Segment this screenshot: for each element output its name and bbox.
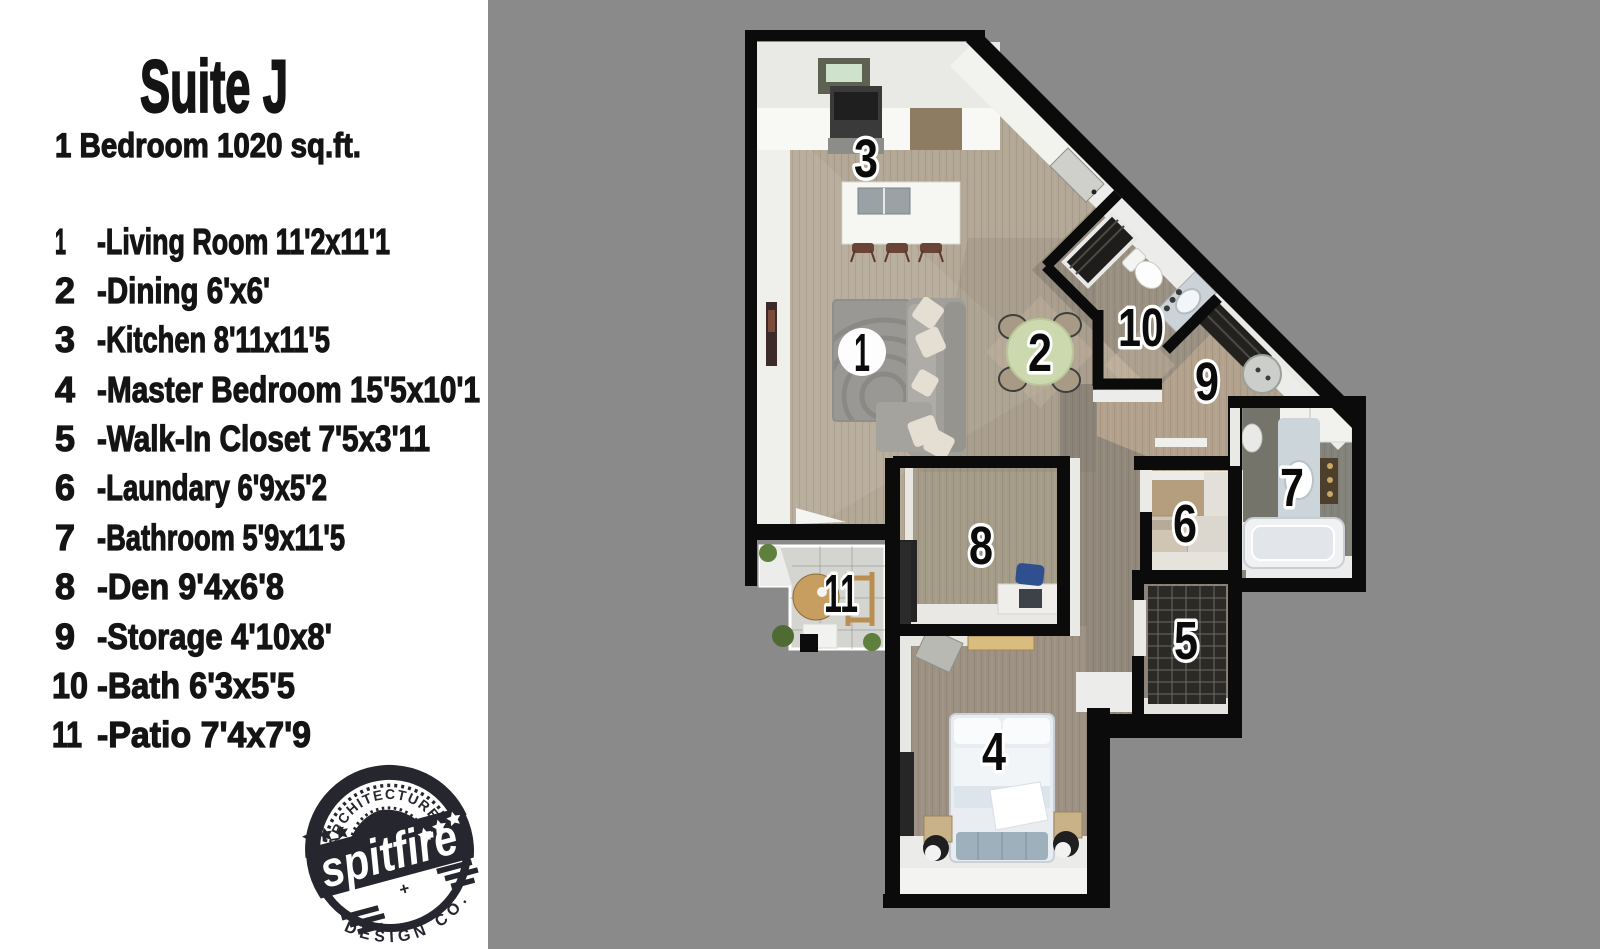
svg-text:3: 3 — [55, 319, 75, 360]
svg-text:-Dining 6'x6': -Dining 6'x6' — [97, 270, 270, 311]
svg-text:6: 6 — [1173, 494, 1197, 554]
svg-text:5: 5 — [55, 418, 75, 459]
svg-text:-Kitchen 8'11x11'5: -Kitchen 8'11x11'5 — [97, 319, 330, 360]
svg-text:-Laundary 6'9x5'2: -Laundary 6'9x5'2 — [97, 467, 327, 508]
svg-text:8: 8 — [969, 516, 993, 576]
svg-text:-Living Room 11'2x11'1: -Living Room 11'2x11'1 — [97, 221, 390, 262]
svg-text:2: 2 — [1028, 323, 1052, 383]
svg-text:10: 10 — [52, 665, 88, 706]
svg-text:Suite J: Suite J — [140, 45, 288, 128]
svg-text:1 Bedroom 1020 sq.ft.: 1 Bedroom 1020 sq.ft. — [55, 127, 361, 165]
svg-text:1: 1 — [854, 323, 870, 383]
svg-text:7: 7 — [55, 517, 75, 558]
svg-text:9: 9 — [1195, 352, 1219, 412]
svg-text:-Storage 4'10x8': -Storage 4'10x8' — [97, 616, 332, 657]
svg-text:11: 11 — [52, 714, 82, 755]
svg-text:-Den 9'4x6'8: -Den 9'4x6'8 — [97, 566, 284, 607]
svg-text:-Walk-In Closet 7'5x3'11: -Walk-In Closet 7'5x3'11 — [97, 418, 430, 459]
svg-text:-Bath 6'3x5'5: -Bath 6'3x5'5 — [97, 665, 295, 706]
svg-text:-Bathroom 5'9x11'5: -Bathroom 5'9x11'5 — [97, 517, 345, 558]
svg-text:4: 4 — [982, 722, 1006, 782]
svg-text:-Master Bedroom 15'5x10'1: -Master Bedroom 15'5x10'1 — [97, 369, 480, 410]
svg-text:5: 5 — [1174, 611, 1198, 671]
svg-text:8: 8 — [55, 566, 75, 607]
svg-text:9: 9 — [55, 616, 75, 657]
svg-text:4: 4 — [55, 369, 75, 410]
svg-text:6: 6 — [55, 467, 75, 508]
svg-text:-Patio 7'4x7'9: -Patio 7'4x7'9 — [97, 714, 311, 755]
svg-text:7: 7 — [1280, 458, 1304, 518]
svg-text:2: 2 — [55, 270, 75, 311]
svg-text:1: 1 — [55, 221, 66, 262]
svg-text:10: 10 — [1118, 298, 1164, 358]
svg-text:3: 3 — [854, 129, 878, 189]
svg-text:11: 11 — [824, 564, 858, 624]
